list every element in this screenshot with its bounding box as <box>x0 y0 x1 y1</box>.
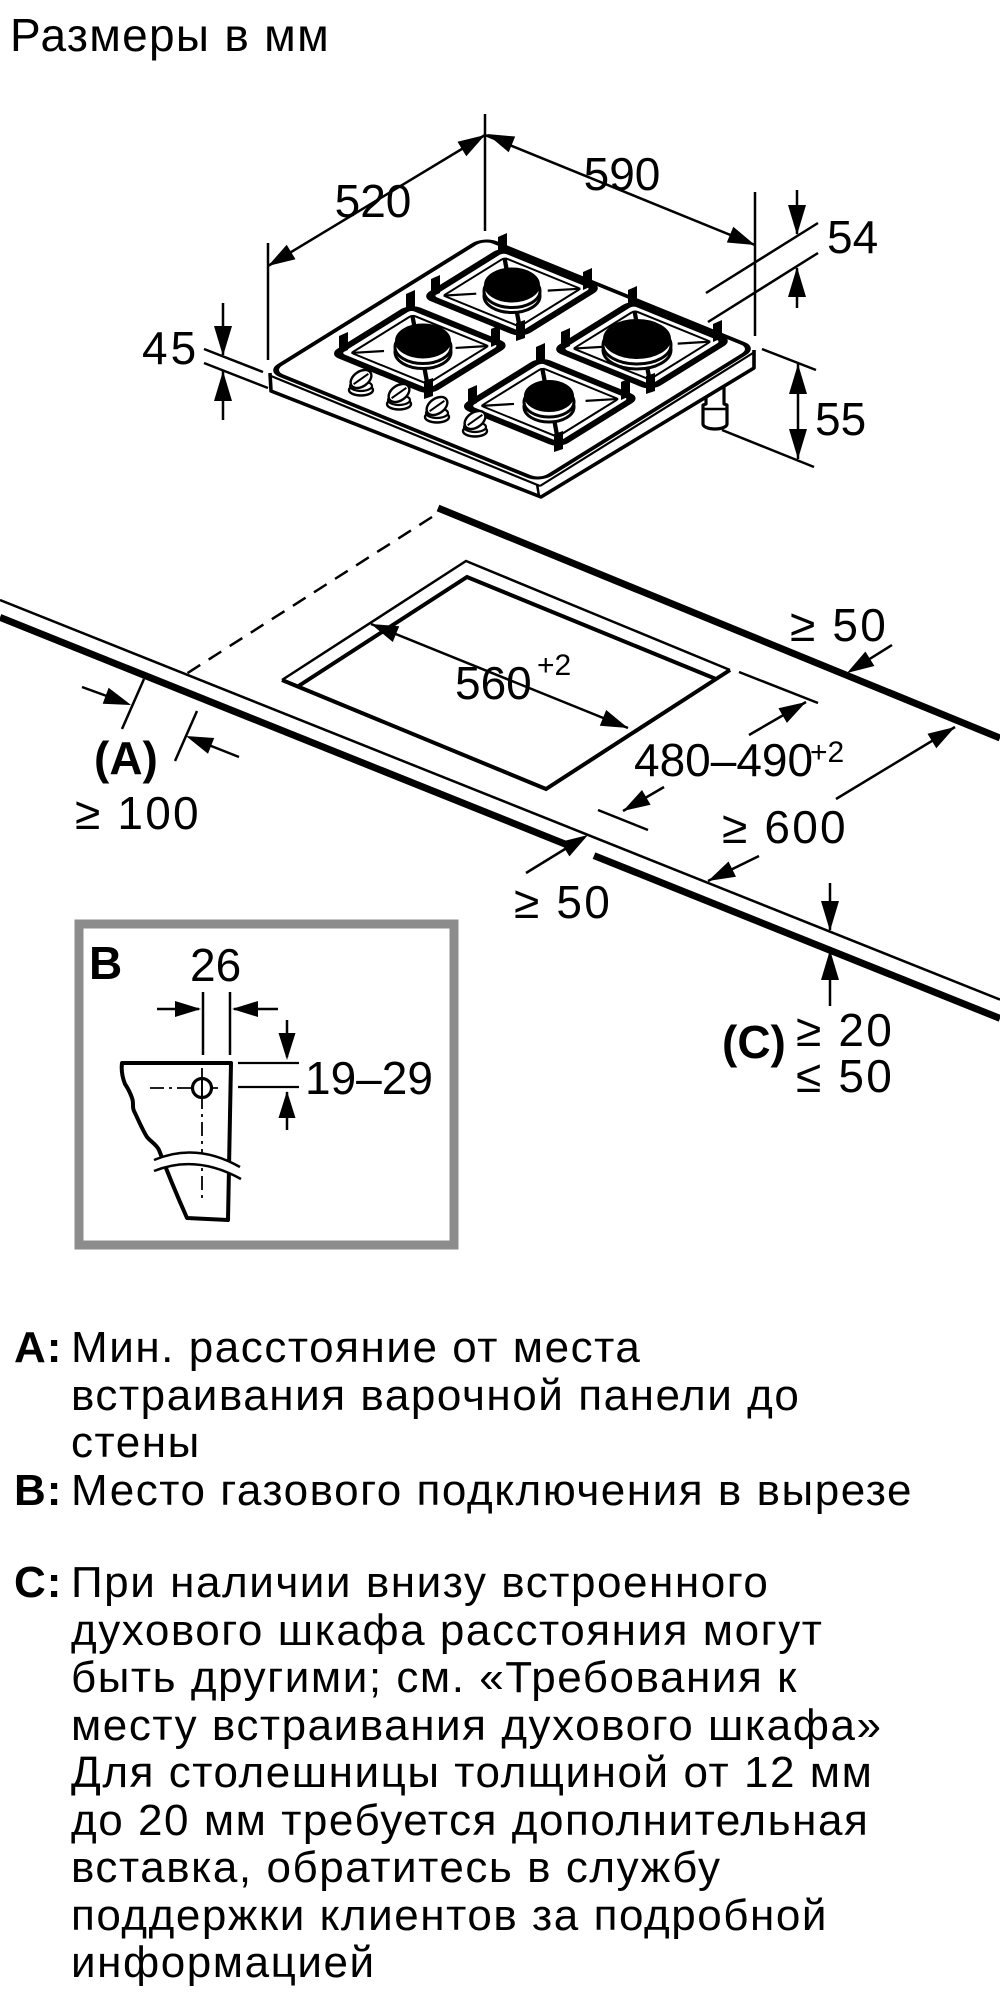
svg-text:до 20 мм требуется дополнитель: до 20 мм требуется дополнительная <box>71 1796 869 1845</box>
svg-text:поддержки клиентов за подробно: поддержки клиентов за подробной <box>71 1891 828 1940</box>
svg-text:480–490: 480–490 <box>634 734 813 786</box>
svg-text:вставка, обратитесь в службу: вставка, обратитесь в службу <box>71 1843 722 1892</box>
svg-text:≥ 50: ≥ 50 <box>790 599 888 651</box>
svg-text:≥ 100: ≥ 100 <box>75 787 201 839</box>
svg-text:Размеры в мм: Размеры в мм <box>10 9 330 61</box>
svg-text:520: 520 <box>335 175 412 227</box>
svg-text:духового шкафа расстояния могу: духового шкафа расстояния могут <box>71 1606 823 1655</box>
svg-text:560: 560 <box>455 657 532 709</box>
svg-text:590: 590 <box>584 148 661 200</box>
svg-text:Мин. расстояние от места: Мин. расстояние от места <box>71 1323 641 1372</box>
svg-text:Для столешницы толщиной от 12: Для столешницы толщиной от 12 мм <box>71 1748 873 1797</box>
svg-text:быть другими; см. «Требования: быть другими; см. «Требования к <box>71 1653 798 1702</box>
svg-text:55: 55 <box>815 393 866 445</box>
svg-text:C:: C: <box>14 1558 62 1607</box>
svg-text:Место газового подключения в в: Место газового подключения в вырезе <box>71 1466 913 1515</box>
svg-text:45: 45 <box>142 322 199 374</box>
svg-text:A:: A: <box>14 1323 62 1372</box>
svg-text:стены: стены <box>71 1418 201 1467</box>
svg-text:При наличии внизу встроенного: При наличии внизу встроенного <box>71 1558 769 1607</box>
svg-text:месту встраивания духового шка: месту встраивания духового шкафа» <box>71 1701 882 1750</box>
svg-text:≤ 50: ≤ 50 <box>796 1050 894 1102</box>
svg-text:(C): (C) <box>722 1016 786 1068</box>
svg-text:19–29: 19–29 <box>305 1052 433 1104</box>
svg-text:информацией: информацией <box>71 1938 376 1987</box>
svg-text:(A): (A) <box>94 732 158 784</box>
svg-text:≥ 20: ≥ 20 <box>796 1004 894 1056</box>
svg-text:встраивания варочной панели до: встраивания варочной панели до <box>71 1371 800 1420</box>
svg-text:+2: +2 <box>810 736 844 769</box>
svg-text:26: 26 <box>190 939 241 991</box>
svg-text:54: 54 <box>827 211 878 263</box>
svg-text:B:: B: <box>14 1466 62 1515</box>
svg-text:+2: +2 <box>537 649 571 682</box>
svg-text:B: B <box>89 937 122 989</box>
svg-text:≥ 600: ≥ 600 <box>722 801 848 853</box>
svg-text:≥ 50: ≥ 50 <box>514 876 612 928</box>
